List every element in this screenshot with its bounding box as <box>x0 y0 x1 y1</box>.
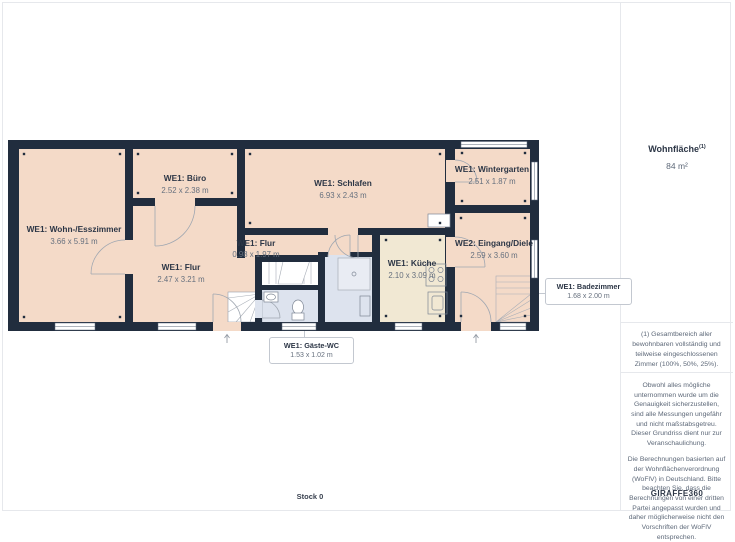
toilet-icon <box>293 300 304 314</box>
svg-text:WE1: Flur: WE1: Flur <box>162 262 201 272</box>
room-dims: 1.53 x 1.02 m <box>272 351 351 360</box>
svg-text:2.59 x 3.60 m: 2.59 x 3.60 m <box>470 251 517 260</box>
total-area-value: 84 m² <box>621 161 733 171</box>
svg-text:WE1: Wintergarten: WE1: Wintergarten <box>455 164 529 174</box>
wc-sink-icon <box>264 292 278 302</box>
svg-text:WE1: Küche: WE1: Küche <box>388 258 437 268</box>
svg-text:2.52 x 2.38 m: 2.52 x 2.38 m <box>161 186 208 195</box>
sidebar-separator-2 <box>621 372 733 373</box>
info-sidebar: Wohnfläche(1) 84 m² (1) Gesamtbereich al… <box>621 0 733 520</box>
area-footnote: (1) Gesamtbereich aller bewohnbaren voll… <box>628 330 725 369</box>
room-label-box-badezimmer: WE1: Badezimmer 1.68 x 2.00 m <box>545 278 632 305</box>
svg-text:WE1: Wohn-/Esszimmer: WE1: Wohn-/Esszimmer <box>27 224 123 234</box>
room-name: WE1: Badezimmer <box>548 282 629 292</box>
area-title-text: Wohnfläche <box>648 144 699 154</box>
room-name: WE1: Gäste-WC <box>272 341 351 351</box>
svg-text:WE2: Eingang/Diele: WE2: Eingang/Diele <box>455 238 533 248</box>
sidebar-separator-1 <box>621 322 733 323</box>
svg-text:6.93 x 2.43 m: 6.93 x 2.43 m <box>319 191 366 200</box>
floor-level-label: Stock 0 <box>0 492 620 501</box>
giraffe360-logo: GIRAFFE360 <box>621 489 733 498</box>
svg-text:2.47 x 3.21 m: 2.47 x 3.21 m <box>157 275 204 284</box>
disclaimer-paragraph-1: Obwohl alles mögliche unternommen wurde … <box>627 381 726 448</box>
svg-text:WE1: Büro: WE1: Büro <box>164 173 206 183</box>
svg-text:3.66 x 5.91 m: 3.66 x 5.91 m <box>50 237 97 246</box>
svg-text:2.10 x 3.09 m: 2.10 x 3.09 m <box>388 271 435 280</box>
room-dims: 1.68 x 2.00 m <box>548 292 629 301</box>
area-title-footnote-ref: (1) <box>699 144 706 150</box>
brand-name: GIRAFFE <box>651 489 689 498</box>
total-area-title: Wohnfläche(1) <box>621 144 733 154</box>
svg-text:2.51 x 1.87 m: 2.51 x 1.87 m <box>468 177 515 186</box>
svg-text:0.98 x 1.97 m: 0.98 x 1.97 m <box>232 250 279 259</box>
svg-text:WE1: Flur: WE1: Flur <box>237 238 276 248</box>
shower-icon <box>338 258 370 290</box>
disclaimer-text: Obwohl alles mögliche unternommen wurde … <box>627 381 726 542</box>
svg-text:WE1: Schlafen: WE1: Schlafen <box>314 178 372 188</box>
disclaimer-paragraph-2: Die Berechnungen basierten auf der Wohnf… <box>627 455 726 542</box>
brand-suffix: 360 <box>689 489 704 498</box>
room-label-box-gaeste-wc: WE1: Gäste-WC 1.53 x 1.02 m <box>269 337 354 364</box>
